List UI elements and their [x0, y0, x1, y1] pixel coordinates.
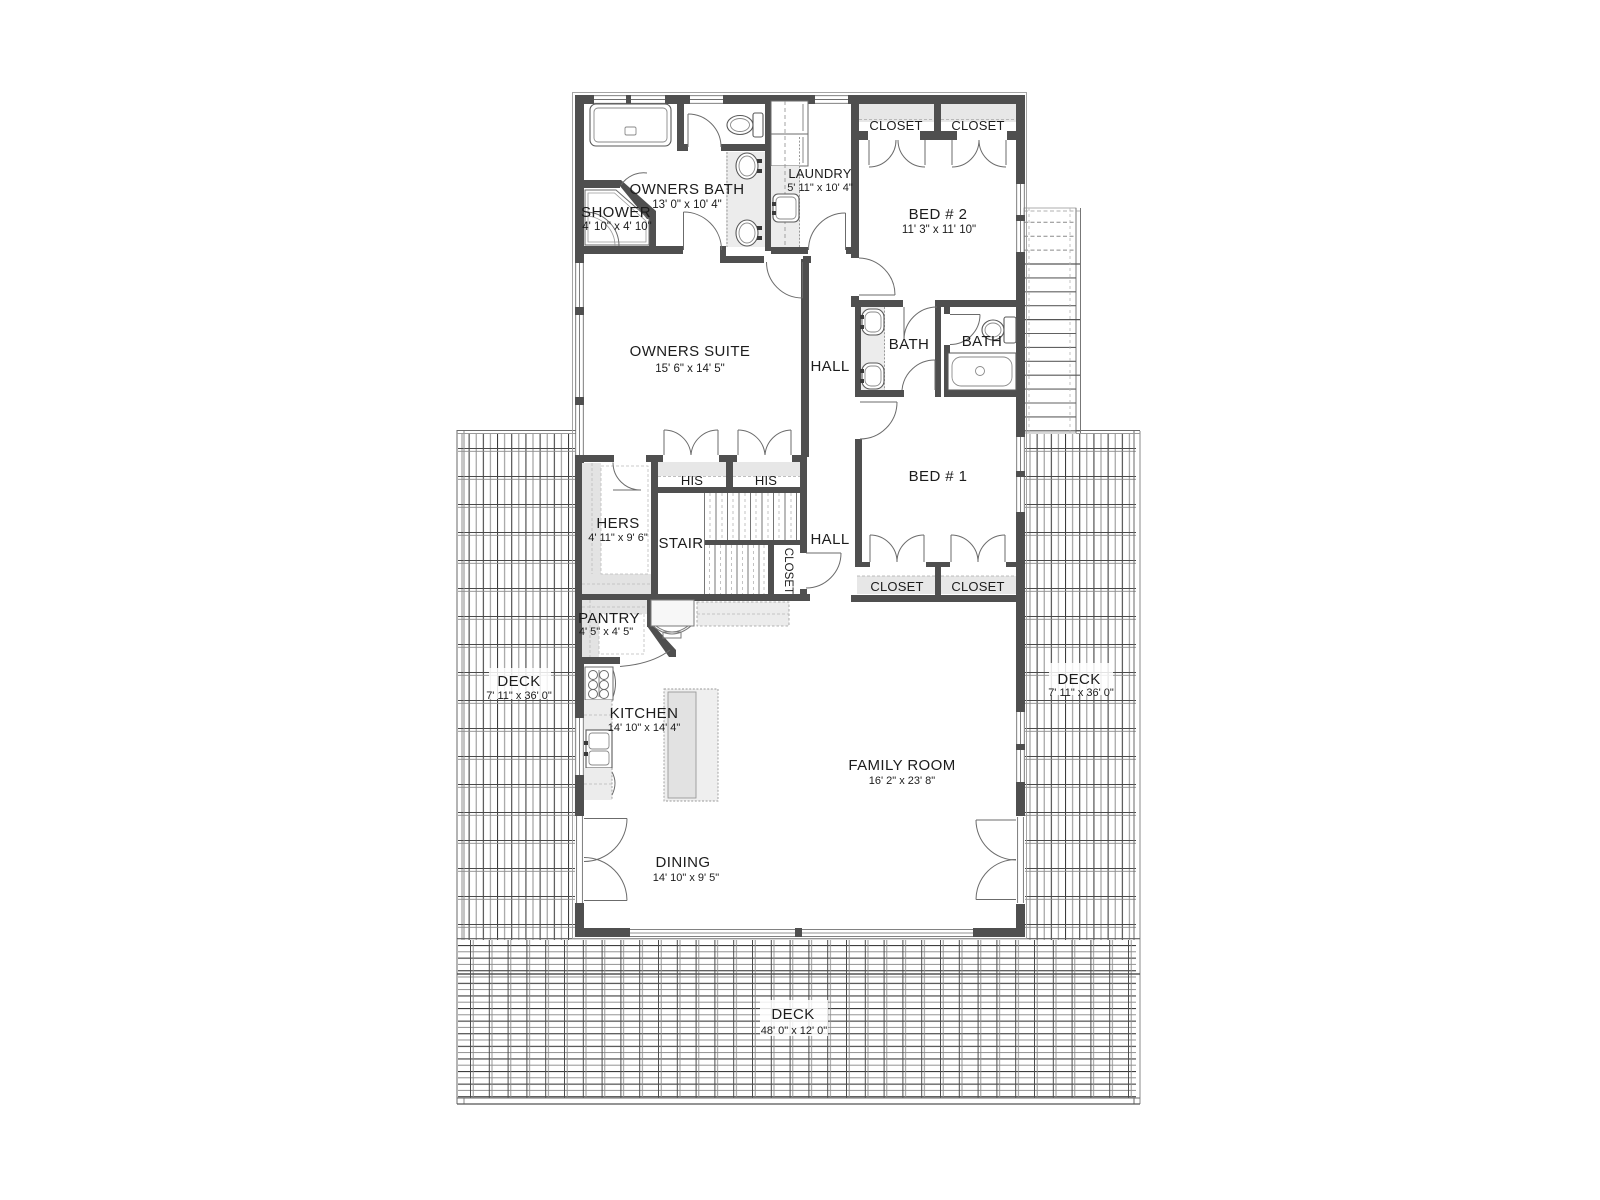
svg-text:14' 10" x 9' 5": 14' 10" x 9' 5" [653, 872, 720, 884]
svg-text:4' 11" x 9' 6": 4' 11" x 9' 6" [588, 532, 648, 544]
svg-text:SHOWER: SHOWER [581, 204, 651, 221]
svg-text:4' 5" x 4' 5": 4' 5" x 4' 5" [579, 626, 633, 638]
svg-text:15' 6" x 14' 5": 15' 6" x 14' 5" [655, 363, 724, 375]
svg-text:48' 0" x 12' 0": 48' 0" x 12' 0" [761, 1025, 828, 1037]
svg-text:DECK: DECK [497, 673, 540, 690]
svg-text:11' 3" x 11' 10": 11' 3" x 11' 10" [902, 224, 976, 236]
svg-text:DECK: DECK [1057, 671, 1100, 688]
svg-text:7' 11" x 36' 0": 7' 11" x 36' 0" [486, 690, 552, 702]
svg-text:OWNERS SUITE: OWNERS SUITE [630, 343, 751, 360]
svg-text:CLOSET: CLOSET [951, 118, 1004, 133]
svg-text:14' 10" x 14' 4": 14' 10" x 14' 4" [608, 722, 681, 734]
svg-text:BED # 2: BED # 2 [909, 206, 968, 223]
svg-text:BATH: BATH [962, 333, 1003, 350]
svg-text:HIS: HIS [755, 473, 777, 488]
svg-text:BATH: BATH [889, 336, 930, 353]
svg-text:CLOSET: CLOSET [951, 579, 1004, 594]
svg-text:STAIR: STAIR [658, 535, 703, 552]
svg-text:13' 0" x 10' 4": 13' 0" x 10' 4" [652, 199, 721, 211]
svg-text:BED # 1: BED # 1 [909, 468, 968, 485]
svg-text:CLOSET: CLOSET [870, 579, 923, 594]
svg-text:PANTRY: PANTRY [578, 610, 640, 627]
svg-text:KITCHEN: KITCHEN [610, 705, 679, 722]
svg-text:CLOSET: CLOSET [782, 548, 794, 595]
svg-text:HALL: HALL [810, 358, 849, 375]
svg-text:HERS: HERS [596, 515, 639, 532]
svg-text:DECK: DECK [771, 1006, 814, 1023]
svg-text:7' 11" x 36' 0": 7' 11" x 36' 0" [1048, 687, 1114, 699]
svg-text:16' 2" x 23' 8": 16' 2" x 23' 8" [869, 775, 936, 787]
svg-text:CLOSET: CLOSET [869, 118, 922, 133]
svg-text:HALL: HALL [810, 531, 849, 548]
svg-text:FAMILY ROOM: FAMILY ROOM [848, 757, 955, 774]
svg-text:5' 11" x 10' 4": 5' 11" x 10' 4" [787, 182, 853, 194]
svg-text:DINING: DINING [656, 854, 711, 871]
svg-text:HIS: HIS [681, 473, 703, 488]
svg-text:OWNERS BATH: OWNERS BATH [630, 181, 745, 198]
svg-text:LAUNDRY: LAUNDRY [788, 166, 851, 181]
svg-text:4' 10" x 4' 10": 4' 10" x 4' 10" [582, 221, 651, 233]
